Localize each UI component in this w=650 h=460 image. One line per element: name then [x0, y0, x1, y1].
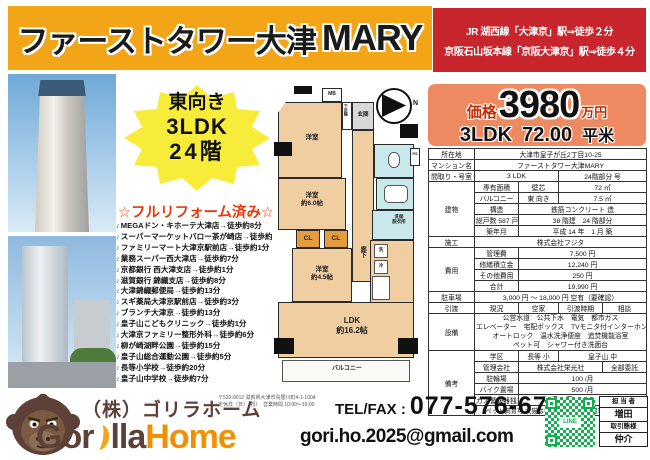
- mgmt-label: 管理費: [475, 248, 519, 259]
- building-photo-1: [8, 74, 116, 232]
- qr-line-label: LINE: [559, 417, 581, 428]
- page-title-en: MARY: [322, 17, 423, 59]
- badge-direction: 東向き: [122, 92, 272, 114]
- price-value: 3980: [499, 86, 580, 124]
- facility-item: ♪皇子山総合運動公園→徒歩約5分: [116, 352, 276, 363]
- parking-label: 駐車場: [429, 292, 475, 303]
- fridge-label: 冷: [374, 263, 388, 268]
- building-label: 建物: [429, 182, 475, 237]
- note-bullet-icon: ♪: [116, 221, 120, 230]
- units-value: 総戸数 587 戸: [475, 215, 519, 226]
- closet-1-label: CL: [296, 235, 320, 243]
- badge-floor: 24階: [122, 139, 272, 164]
- banana-icon: [93, 424, 111, 451]
- repair-label: 修繕積立金: [475, 259, 519, 270]
- note-bullet-icon: ♪: [116, 297, 120, 306]
- floors-value: 38 階建 24 階部分: [519, 215, 647, 226]
- toilet-fixture: [388, 152, 400, 168]
- handover-now: 現況: [475, 303, 519, 314]
- entrance-label: 玄関: [352, 112, 374, 119]
- facility-text: 滋賀銀行 錦織支店→徒歩約8分: [121, 276, 226, 285]
- handover-time: 相談: [603, 303, 647, 314]
- mgmt-value: 7,500 円: [519, 248, 647, 259]
- total-label: 合計: [475, 281, 519, 292]
- qr-finder: [546, 435, 557, 446]
- pillar: [294, 86, 312, 94]
- pillar: [274, 142, 292, 156]
- closet-2-label: CL: [324, 235, 348, 243]
- reform-banner: ☆フルリフォーム済み☆: [108, 201, 284, 222]
- facility-text: 大津京ファミリー整形外科→徒歩約6分: [121, 330, 254, 339]
- company-logo-wordmark: Gor lla Home: [36, 418, 236, 457]
- facility-text: スーパーマーケットバロー茶が崎店→徒歩約8分: [121, 232, 285, 241]
- ldk-label: LDK 約16.2帖: [317, 316, 387, 335]
- balcony-dir: 東 向き: [519, 193, 559, 204]
- loc-value: 大津市皇子が丘2丁目10-25: [475, 149, 647, 160]
- property-details-table: 所在地大津市皇子が丘2丁目10-25 マンション名ファーストタワー大津MARY …: [428, 148, 647, 416]
- constructor-value: 株式会社フジタ: [475, 237, 647, 248]
- parking-value: 3,000 円 ～ 18,000 円 空有（要確認）: [475, 292, 647, 303]
- page-title: ファーストタワー大津: [17, 16, 315, 61]
- tower-top-shape: [35, 80, 89, 96]
- note-bullet-icon: ♪: [116, 254, 120, 263]
- shoe-box-label: 下足箱: [343, 104, 348, 116]
- area-label: 専有面積: [475, 182, 519, 193]
- logo-part-2: lla: [110, 418, 145, 457]
- deal-type-label: 取引態様: [600, 422, 647, 433]
- layout-label: 間取り・号室: [429, 171, 475, 182]
- price-unit: 万円: [581, 106, 607, 119]
- facility-text: ファミリーマート大津京駅前店→徒歩約1分: [121, 243, 270, 252]
- total-value: 19,990 円: [519, 281, 647, 292]
- facility-text: 皇子山中学校→徒歩約7分: [121, 374, 209, 383]
- pillar: [274, 338, 294, 354]
- handover-label: 引渡: [429, 303, 475, 314]
- facility-item: ♪ファミリーマート大津京駅前店→徒歩約1分: [116, 243, 276, 254]
- nearby-facilities-list: ♪MEGAドン・キホーテ大津店→徒歩約8分 ♪スーパーマーケットバロー茶が崎店→…: [116, 221, 276, 385]
- balcony-label: バルコニー: [312, 366, 382, 373]
- school-label: 学区: [475, 351, 519, 362]
- floor-plan: MB 洋室 下足箱 玄関 廊下 洋室 約6.0帖 CL CL 洋室 約4.5帖 …: [272, 86, 420, 386]
- note-bullet-icon: ♪: [116, 276, 120, 285]
- facility-item: ♪長等小学校→徒歩約20分: [116, 363, 276, 374]
- qr-finder: [583, 398, 594, 409]
- compass-north-label: N: [413, 100, 418, 107]
- badge-text: 東向き 3LDK 24階: [122, 92, 272, 164]
- handover-time-label: 引渡時期: [559, 303, 603, 314]
- logo-part-1: Gor: [36, 418, 93, 457]
- pillar: [398, 338, 418, 354]
- cost-label: 費用: [429, 248, 475, 292]
- access-line-1: JR 湖西線「大津京」駅⇒徒歩２分: [466, 23, 613, 38]
- equipment-label: 設備: [429, 314, 475, 351]
- road-shape: [8, 362, 116, 388]
- facility-item: ♪柳が崎湖畔公園→徒歩約15分: [116, 341, 276, 352]
- cycle-label: 駐輪場: [475, 373, 519, 384]
- access-line-2: 京阪石山坂本線「京阪大津京」駅⇒徒歩４分: [444, 43, 634, 58]
- pillar: [400, 124, 418, 138]
- price-row: 価格 3980 万円: [467, 86, 608, 124]
- loc-label: 所在地: [429, 149, 475, 160]
- bedroom-small-label: 洋室 約4.5帖: [296, 266, 348, 282]
- area-value: 72 ㎡: [559, 182, 647, 193]
- facility-text: ブランチ大津京→徒歩約13分: [121, 308, 221, 317]
- building-photo-2: [8, 236, 116, 388]
- facility-item: ♪ブランチ大津京→徒歩約13分: [116, 308, 276, 319]
- logo-part-3: Home: [145, 418, 235, 457]
- facility-item: ♪大津京ファミリー整形外科→徒歩約6分: [116, 330, 276, 341]
- layout-floor-value: 24階部分 号: [559, 171, 647, 182]
- facility-item: ♪皇子山こどもクリニック→徒歩約1分: [116, 319, 276, 330]
- corridor-label: 廊下: [358, 246, 365, 258]
- mgmtco-value: 株式会社栄光社: [519, 362, 603, 373]
- title-banner: ファーストタワー大津 MARY: [8, 6, 432, 70]
- bathtub-fixture: [384, 185, 408, 203]
- note-bullet-icon: ♪: [116, 352, 120, 361]
- equipment-line: 公営水道 公共下水 電気 都市ガス: [476, 314, 645, 323]
- facility-item: ♪スーパーマーケットバロー茶が崎店→徒歩約8分: [116, 232, 276, 243]
- address-line-2: 定休日（日）（祝） 営業時間 10:00～19:00: [218, 402, 336, 409]
- note-bullet-icon: ♪: [116, 308, 120, 317]
- compass-icon: [376, 88, 412, 124]
- bedroom-mid-label: 洋室 約6.0帖: [282, 192, 342, 208]
- note-bullet-icon: ♪: [116, 243, 120, 252]
- facility-text: 皇子山こどもクリニック→徒歩約1分: [121, 319, 247, 328]
- school-elementary: 長等 小: [519, 351, 559, 362]
- tower-image-shape: [35, 80, 89, 232]
- tel-label: TEL/FAX :: [335, 401, 406, 418]
- constructor-label: 施工: [429, 237, 475, 248]
- equipment-value: 公営水道 公共下水 電気 都市ガス エレベーター 宅配ボックス TVモニタ付イン…: [475, 314, 647, 351]
- built-label: 築年月: [475, 226, 519, 237]
- facility-text: 大津錦織郵便局→徒歩約13分: [121, 286, 221, 295]
- agent-name: 増田: [600, 408, 647, 422]
- tel-fax-row: TEL/FAX : 077-576-6763: [335, 392, 578, 421]
- layout-area-row: 3LDK 72.00 平米: [460, 125, 614, 145]
- note-bullet-icon: ♪: [116, 286, 120, 295]
- price-label: 価格: [467, 105, 497, 120]
- handover-state: 空家: [519, 303, 559, 314]
- qr-finder: [546, 398, 557, 409]
- meter-box-label: MB: [322, 91, 342, 97]
- facility-text: 京都銀行 西大津支店→徒歩約1分: [121, 265, 234, 274]
- badge-layout: 3LDK: [122, 114, 272, 139]
- note-bullet-icon: ♪: [116, 363, 120, 372]
- equipment-line: ペット可 シャワー付き洗面台: [476, 341, 645, 350]
- deal-type-value: 仲介: [600, 433, 647, 446]
- facility-item: ♪皇子山中学校→徒歩約7分: [116, 374, 276, 385]
- area-type: 壁芯: [519, 182, 559, 193]
- facility-text: 長等小学校→徒歩約20分: [121, 363, 205, 372]
- tower-image-shape-2: [22, 246, 68, 364]
- facility-item: ♪滋賀銀行 錦織支店→徒歩約8分: [116, 276, 276, 287]
- facility-text: スギ薬局大津京駅前店→徒歩約3分: [121, 297, 239, 306]
- company-address: 〒520-0012 滋賀県大津市鳥居川町4-1-1004 定休日（日）（祝） 営…: [218, 395, 336, 408]
- facility-text: 皇子山総合運動公園→徒歩約5分: [121, 352, 232, 361]
- pipe-space-label: PS: [411, 152, 419, 157]
- facility-text: 業務スーパー西大津店→徒歩約7分: [121, 254, 239, 263]
- other-label: その他費用: [475, 270, 519, 281]
- washroom-label: 洗面 脱衣所: [384, 214, 414, 225]
- cycle-value: 100 /月: [519, 373, 647, 384]
- area-unit: 平米: [582, 129, 614, 145]
- balcony-area: 7.5 ㎡: [559, 193, 647, 204]
- name-value: ファーストタワー大津MARY: [475, 160, 647, 171]
- balcony-label: バルコニー: [475, 193, 519, 204]
- layout-value: 3 LDK: [475, 171, 559, 182]
- highlight-badge: 東向き 3LDK 24階: [122, 82, 272, 194]
- area-value: 72.00: [522, 125, 572, 145]
- facility-item: ♪大津錦織郵便局→徒歩約13分: [116, 286, 276, 297]
- line-qr-code: LINE: [545, 397, 595, 447]
- equipment-line: エレベーター 宅配ボックス TVモニタ付インターホン: [476, 323, 645, 332]
- flyer-page: ファーストタワー大津 MARY JR 湖西線「大津京」駅⇒徒歩２分 京阪石山坂本…: [0, 0, 650, 460]
- note-bullet-icon: ♪: [116, 330, 120, 339]
- other-value: 250 円: [519, 270, 647, 281]
- mgmtco-label: 管理会社: [475, 362, 519, 373]
- agent-label: 担 当 者: [600, 397, 647, 408]
- facility-text: 柳が崎湖畔公園→徒歩約15分: [121, 341, 221, 350]
- facility-item: ♪MEGAドン・キホーテ大津店→徒歩約8分: [116, 221, 276, 232]
- email-address: gori.ho.2025@gmail.com: [300, 426, 513, 448]
- bedroom-top-label: 洋室: [292, 134, 332, 142]
- built-value: 平成 14 年 1 月 築: [519, 226, 647, 237]
- note-bullet-icon: ♪: [116, 232, 120, 241]
- mgmtco-type: 全部委託: [603, 362, 647, 373]
- equipment-line: オートロック 温水洗浄便座 追焚機能浴室: [476, 332, 645, 341]
- school-junior: 皇子山 中: [559, 351, 647, 362]
- repair-value: 12,240 円: [519, 259, 647, 270]
- note-bullet-icon: ♪: [116, 374, 120, 383]
- name-label: マンション名: [429, 160, 475, 171]
- kitchen-counter-fixture: [372, 276, 390, 300]
- layout-value: 3LDK: [460, 125, 512, 145]
- price-box: 価格 3980 万円 3LDK 72.00 平米: [428, 84, 646, 146]
- note-bullet-icon: ♪: [116, 341, 120, 350]
- structure-value: 鉄筋コンクリート 造: [519, 204, 647, 215]
- facility-item: ♪スギ薬局大津京駅前店→徒歩約3分: [116, 297, 276, 308]
- station-access-box: JR 湖西線「大津京」駅⇒徒歩２分 京阪石山坂本線「京阪大津京」駅⇒徒歩４分: [433, 8, 646, 72]
- facility-item: ♪業務スーパー西大津店→徒歩約7分: [116, 254, 276, 265]
- facility-item: ♪京都銀行 西大津支店→徒歩約1分: [116, 265, 276, 276]
- facility-text: MEGAドン・キホーテ大津店→徒歩約8分: [121, 221, 262, 230]
- washer-label: 洗: [374, 247, 388, 252]
- note-bullet-icon: ♪: [116, 319, 120, 328]
- agent-info-box: 担 当 者 増田 取引態様 仲介: [599, 396, 648, 447]
- note-bullet-icon: ♪: [116, 265, 120, 274]
- structure-label: 構造: [475, 204, 519, 215]
